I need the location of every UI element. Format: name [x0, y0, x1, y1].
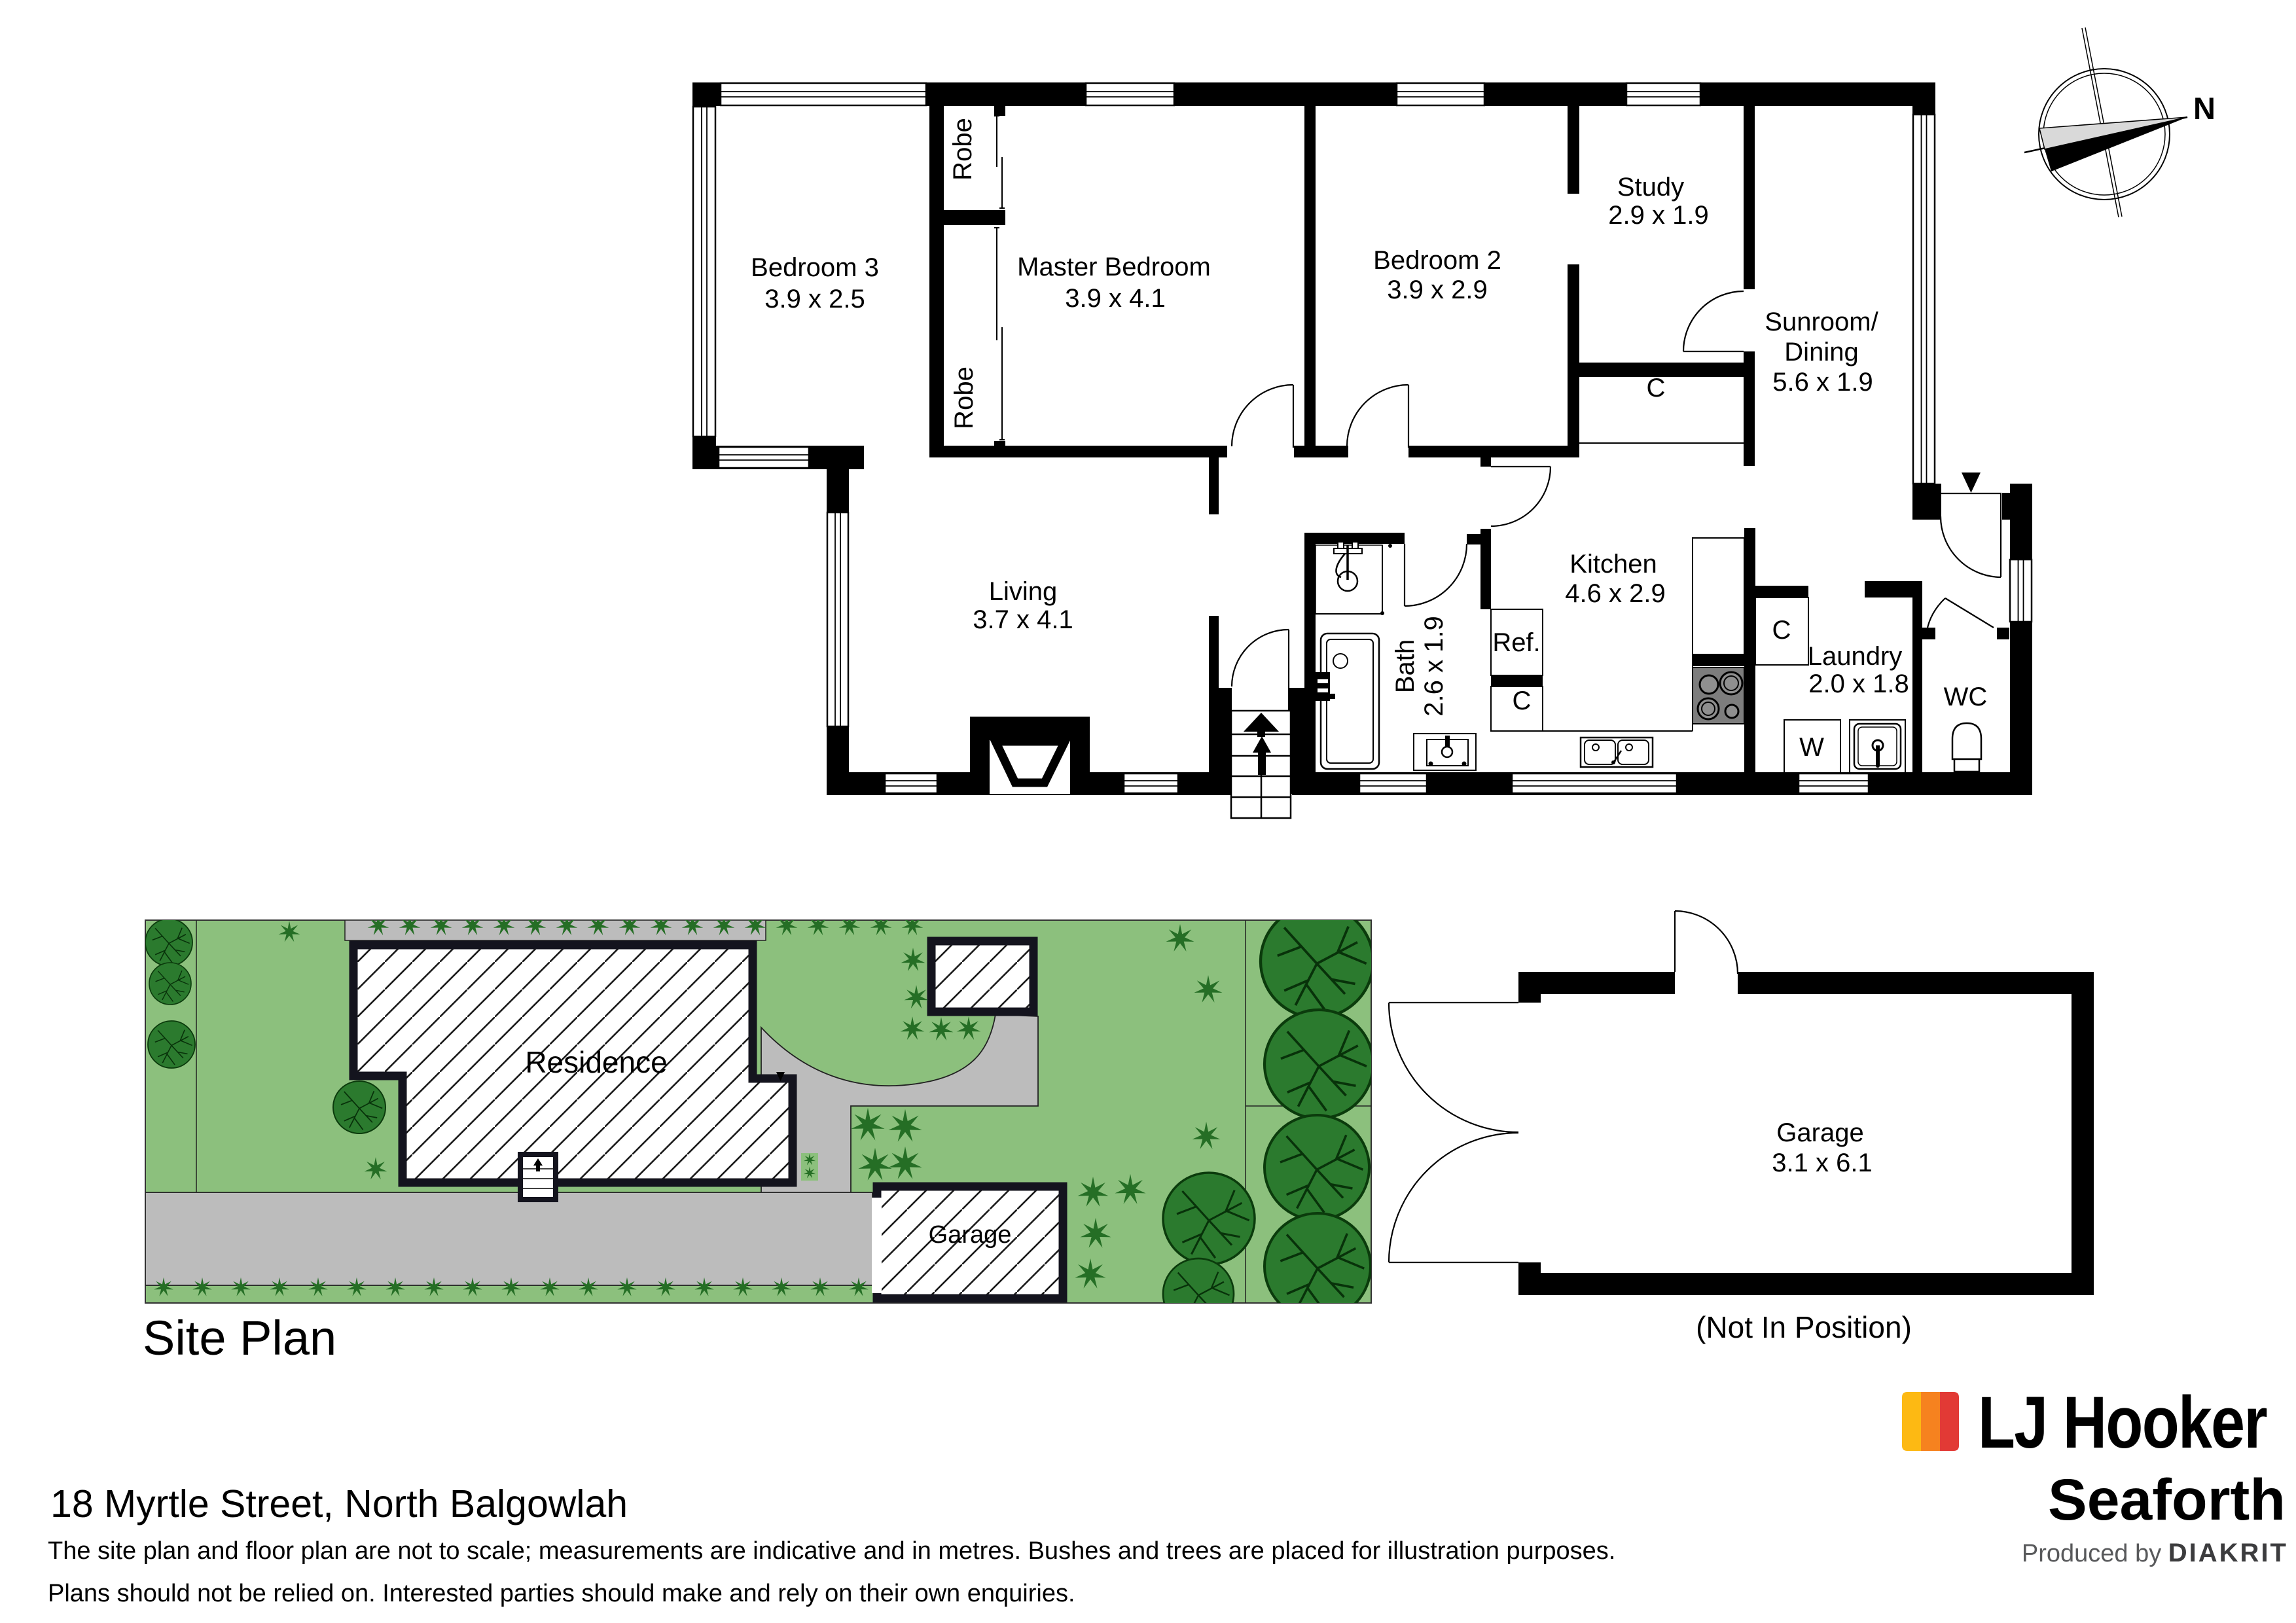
svg-text:4.6 x 2.9: 4.6 x 2.9 — [1565, 579, 1665, 608]
svg-text:18 Myrtle Street, North Balgow: 18 Myrtle Street, North Balgowlah — [50, 1482, 628, 1525]
svg-text:Kitchen: Kitchen — [1570, 550, 1657, 579]
svg-text:2.6 x 1.9: 2.6 x 1.9 — [1420, 616, 1448, 716]
svg-text:Plans should not be relied on.: Plans should not be relied on. Intereste… — [48, 1580, 1075, 1607]
svg-text:Dining: Dining — [1784, 338, 1858, 366]
svg-text:5.6 x 1.9: 5.6 x 1.9 — [1772, 368, 1873, 397]
svg-text:Site Plan: Site Plan — [143, 1311, 336, 1365]
svg-text:Master Bedroom: Master Bedroom — [1017, 253, 1211, 281]
svg-text:LJ Hooker: LJ Hooker — [1978, 1382, 2267, 1463]
svg-text:Robe: Robe — [950, 366, 978, 429]
svg-text:Study: Study — [1617, 173, 1684, 202]
svg-text:Produced by DIAKRIT: Produced by DIAKRIT — [2022, 1539, 2288, 1567]
svg-text:Bedroom 3: Bedroom 3 — [751, 253, 879, 282]
svg-text:W: W — [1799, 733, 1824, 762]
svg-text:N: N — [2193, 91, 2215, 126]
svg-text:Seaforth: Seaforth — [2048, 1467, 2286, 1532]
svg-text:C: C — [1772, 616, 1791, 645]
svg-text:Bedroom 2: Bedroom 2 — [1373, 246, 1501, 275]
svg-text:Bath: Bath — [1391, 639, 1420, 693]
svg-text:Garage: Garage — [1776, 1118, 1863, 1147]
svg-text:(Not In Position): (Not In Position) — [1696, 1310, 1912, 1344]
svg-text:Residence: Residence — [525, 1045, 667, 1079]
svg-text:Garage: Garage — [929, 1221, 1012, 1249]
svg-text:3.9 x 2.5: 3.9 x 2.5 — [764, 285, 865, 313]
svg-text:WC: WC — [1944, 683, 1988, 711]
svg-text:Robe: Robe — [948, 118, 977, 181]
svg-text:Laundry: Laundry — [1808, 642, 1903, 671]
svg-text:2.0 x 1.8: 2.0 x 1.8 — [1808, 669, 1909, 698]
svg-text:3.7 x 4.1: 3.7 x 4.1 — [973, 605, 1073, 634]
svg-text:3.9 x 2.9: 3.9 x 2.9 — [1387, 276, 1487, 304]
svg-text:3.1 x 6.1: 3.1 x 6.1 — [1772, 1149, 1872, 1177]
svg-text:3.9 x 4.1: 3.9 x 4.1 — [1065, 284, 1165, 313]
svg-text:C: C — [1647, 374, 1666, 402]
svg-text:Living: Living — [989, 577, 1058, 606]
svg-text:C: C — [1513, 687, 1532, 715]
svg-text:The site plan and floor plan a: The site plan and floor plan are not to … — [48, 1537, 1615, 1565]
svg-text:Ref.: Ref. — [1492, 628, 1540, 657]
svg-text:Sunroom/: Sunroom/ — [1765, 308, 1878, 336]
svg-text:2.9 x 1.9: 2.9 x 1.9 — [1608, 201, 1708, 230]
